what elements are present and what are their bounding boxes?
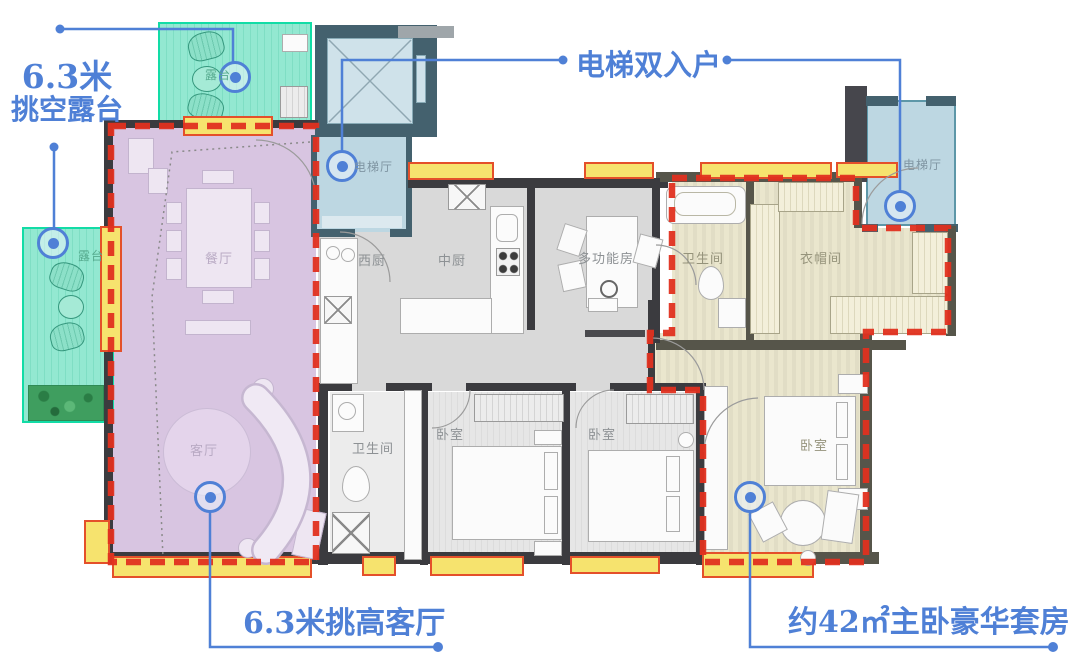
callout-ring-master	[734, 481, 766, 513]
sink	[326, 246, 340, 260]
door-opening	[576, 383, 610, 391]
rug	[780, 500, 826, 546]
window	[362, 556, 396, 576]
elevator-mat	[322, 216, 402, 228]
wall-segment	[860, 333, 872, 561]
callout-dot	[56, 25, 65, 34]
window	[100, 226, 122, 352]
callout-dot	[433, 642, 443, 652]
callout-ring-elevator-right	[884, 190, 916, 222]
side-table	[252, 378, 274, 400]
decor-circle	[600, 280, 618, 298]
floor-plan: 露台 露台 电梯厅 电梯厅 餐厅 西厨 中厨 多功能房 卫生间 衣帽间 客厅 卫…	[0, 0, 1080, 671]
sink	[341, 248, 355, 262]
corridor-floor	[318, 333, 658, 388]
wall-segment	[926, 96, 956, 106]
room-label-cloakroom: 衣帽间	[800, 248, 842, 267]
pillow	[666, 456, 680, 492]
room-label-chinese-kitchen: 中厨	[438, 250, 466, 269]
wall-segment	[648, 300, 655, 390]
callout-ring-living	[194, 481, 226, 513]
room-label-bathroom: 卫生间	[352, 438, 394, 457]
dining-chair	[166, 202, 182, 224]
callout-dot	[559, 56, 568, 65]
nightstand	[534, 541, 562, 556]
callout-ring-terrace-left	[37, 227, 69, 259]
room-label-elevator-left: 电梯厅	[354, 158, 393, 175]
room-label-master-bath: 卫生间	[682, 248, 724, 267]
nightstand	[678, 432, 694, 448]
pillow	[544, 496, 558, 534]
terrace-chair	[185, 28, 227, 64]
terrace-cabinet	[282, 34, 308, 52]
wall-segment	[311, 135, 317, 235]
room-label-terrace-top: 露台	[205, 66, 231, 83]
cabinet	[148, 168, 168, 194]
callout-dot	[1048, 642, 1058, 652]
room-label-master-bedroom: 卧室	[800, 435, 828, 454]
callout-high-living: 6.3米挑高客厅	[243, 598, 445, 642]
dining-chair	[254, 230, 270, 252]
room-label-dining: 餐厅	[205, 248, 233, 267]
sideboard	[185, 320, 251, 335]
window	[112, 556, 312, 578]
terrace-table	[58, 295, 84, 319]
room-label-multi-function: 多功能房	[578, 248, 634, 267]
window	[430, 556, 524, 576]
wardrobe	[474, 394, 564, 422]
dining-chair	[254, 258, 270, 280]
wardrobe	[750, 204, 780, 334]
nightstand	[838, 374, 868, 394]
pillow	[666, 496, 680, 532]
toilet	[698, 266, 724, 300]
pouf	[800, 550, 816, 566]
dining-chair	[202, 170, 234, 184]
tv-cabinet	[704, 386, 728, 550]
dining-chair	[202, 290, 234, 304]
bath-cabinet	[404, 390, 422, 560]
room-label-terrace-left: 露台	[78, 247, 104, 264]
wall-segment	[656, 340, 906, 350]
room-label-living: 客厅	[190, 440, 218, 459]
dining-chair	[166, 258, 182, 280]
room-label-west-kitchen: 西厨	[358, 250, 386, 269]
wardrobe	[778, 182, 844, 212]
toilet	[342, 466, 370, 502]
terrace-plants	[28, 385, 104, 421]
dining-chair	[166, 230, 182, 252]
pillow	[836, 402, 848, 438]
wall-segment	[866, 96, 898, 106]
wall-segment	[854, 178, 862, 228]
callout-dot	[723, 56, 732, 65]
wall-segment	[527, 182, 535, 330]
terrace-chair	[47, 319, 87, 353]
pillow	[836, 444, 848, 480]
stool	[588, 298, 618, 312]
wall-segment	[311, 229, 355, 237]
wall-segment	[862, 224, 878, 232]
callout-void-terrace-line2: 挑空露台	[0, 88, 134, 128]
appliance	[324, 296, 352, 324]
wardrobe	[830, 296, 948, 334]
window	[183, 116, 273, 136]
terrace-bench	[280, 86, 308, 118]
wall-segment	[398, 26, 454, 38]
bay-window	[702, 552, 814, 578]
callout-dot	[50, 143, 59, 152]
door-opening	[432, 383, 466, 391]
window	[570, 556, 660, 574]
callout-master-suite: 约42㎡主卧豪华套房	[788, 597, 1070, 641]
pillow	[544, 452, 558, 490]
elevator-slot	[416, 55, 426, 103]
shower	[332, 512, 370, 554]
pouf	[238, 538, 258, 558]
sink	[496, 214, 518, 242]
window	[700, 162, 832, 179]
dining-chair	[254, 202, 270, 224]
door-opening	[352, 383, 386, 391]
elevator-car-left	[327, 38, 413, 124]
nightstand	[534, 430, 562, 445]
callout-double-elevator: 电梯双入户	[576, 42, 721, 84]
window	[584, 162, 654, 179]
room-label-elevator-right: 电梯厅	[903, 156, 942, 173]
dining-table	[186, 188, 252, 288]
wardrobe	[912, 232, 948, 294]
bathtub-inner	[674, 192, 736, 216]
room-label-bedroom-1: 卧室	[436, 424, 464, 443]
stove-burners	[496, 248, 520, 276]
fridge	[448, 184, 486, 210]
room-label-bedroom-2: 卧室	[588, 424, 616, 443]
console-table	[585, 330, 645, 337]
wall-segment	[390, 229, 412, 237]
window	[408, 162, 494, 180]
kitchen-island	[400, 298, 492, 334]
window	[836, 162, 898, 178]
vanity	[718, 298, 746, 328]
sink	[338, 402, 356, 420]
wardrobe	[626, 394, 694, 424]
window	[84, 520, 110, 564]
